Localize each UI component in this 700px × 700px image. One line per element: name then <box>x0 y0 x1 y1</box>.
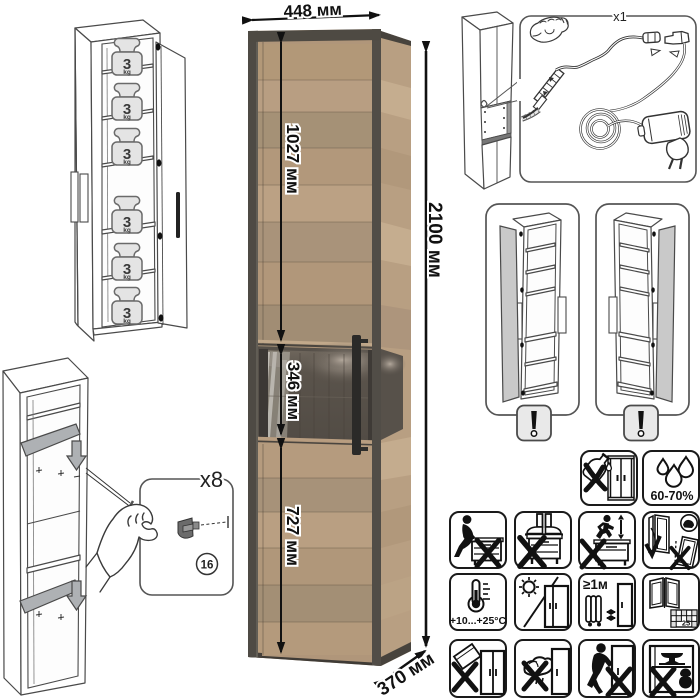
svg-text:16: 16 <box>201 560 214 572</box>
svg-text:x1: x1 <box>613 9 627 24</box>
svg-text:≥1м: ≥1м <box>583 577 608 592</box>
svg-text:25: 25 <box>682 619 690 628</box>
svg-text:727 мм: 727 мм <box>283 506 303 566</box>
svg-text:346 мм: 346 мм <box>284 362 303 420</box>
svg-text:+10...+25°C: +10...+25°C <box>450 615 507 627</box>
svg-text:x8: x8 <box>200 467 223 492</box>
svg-text:60-70%: 60-70% <box>650 489 693 503</box>
svg-text:2100 мм: 2100 мм <box>424 202 445 278</box>
svg-text:448 мм: 448 мм <box>283 0 342 21</box>
svg-text:1027 мм: 1027 мм <box>283 124 303 194</box>
